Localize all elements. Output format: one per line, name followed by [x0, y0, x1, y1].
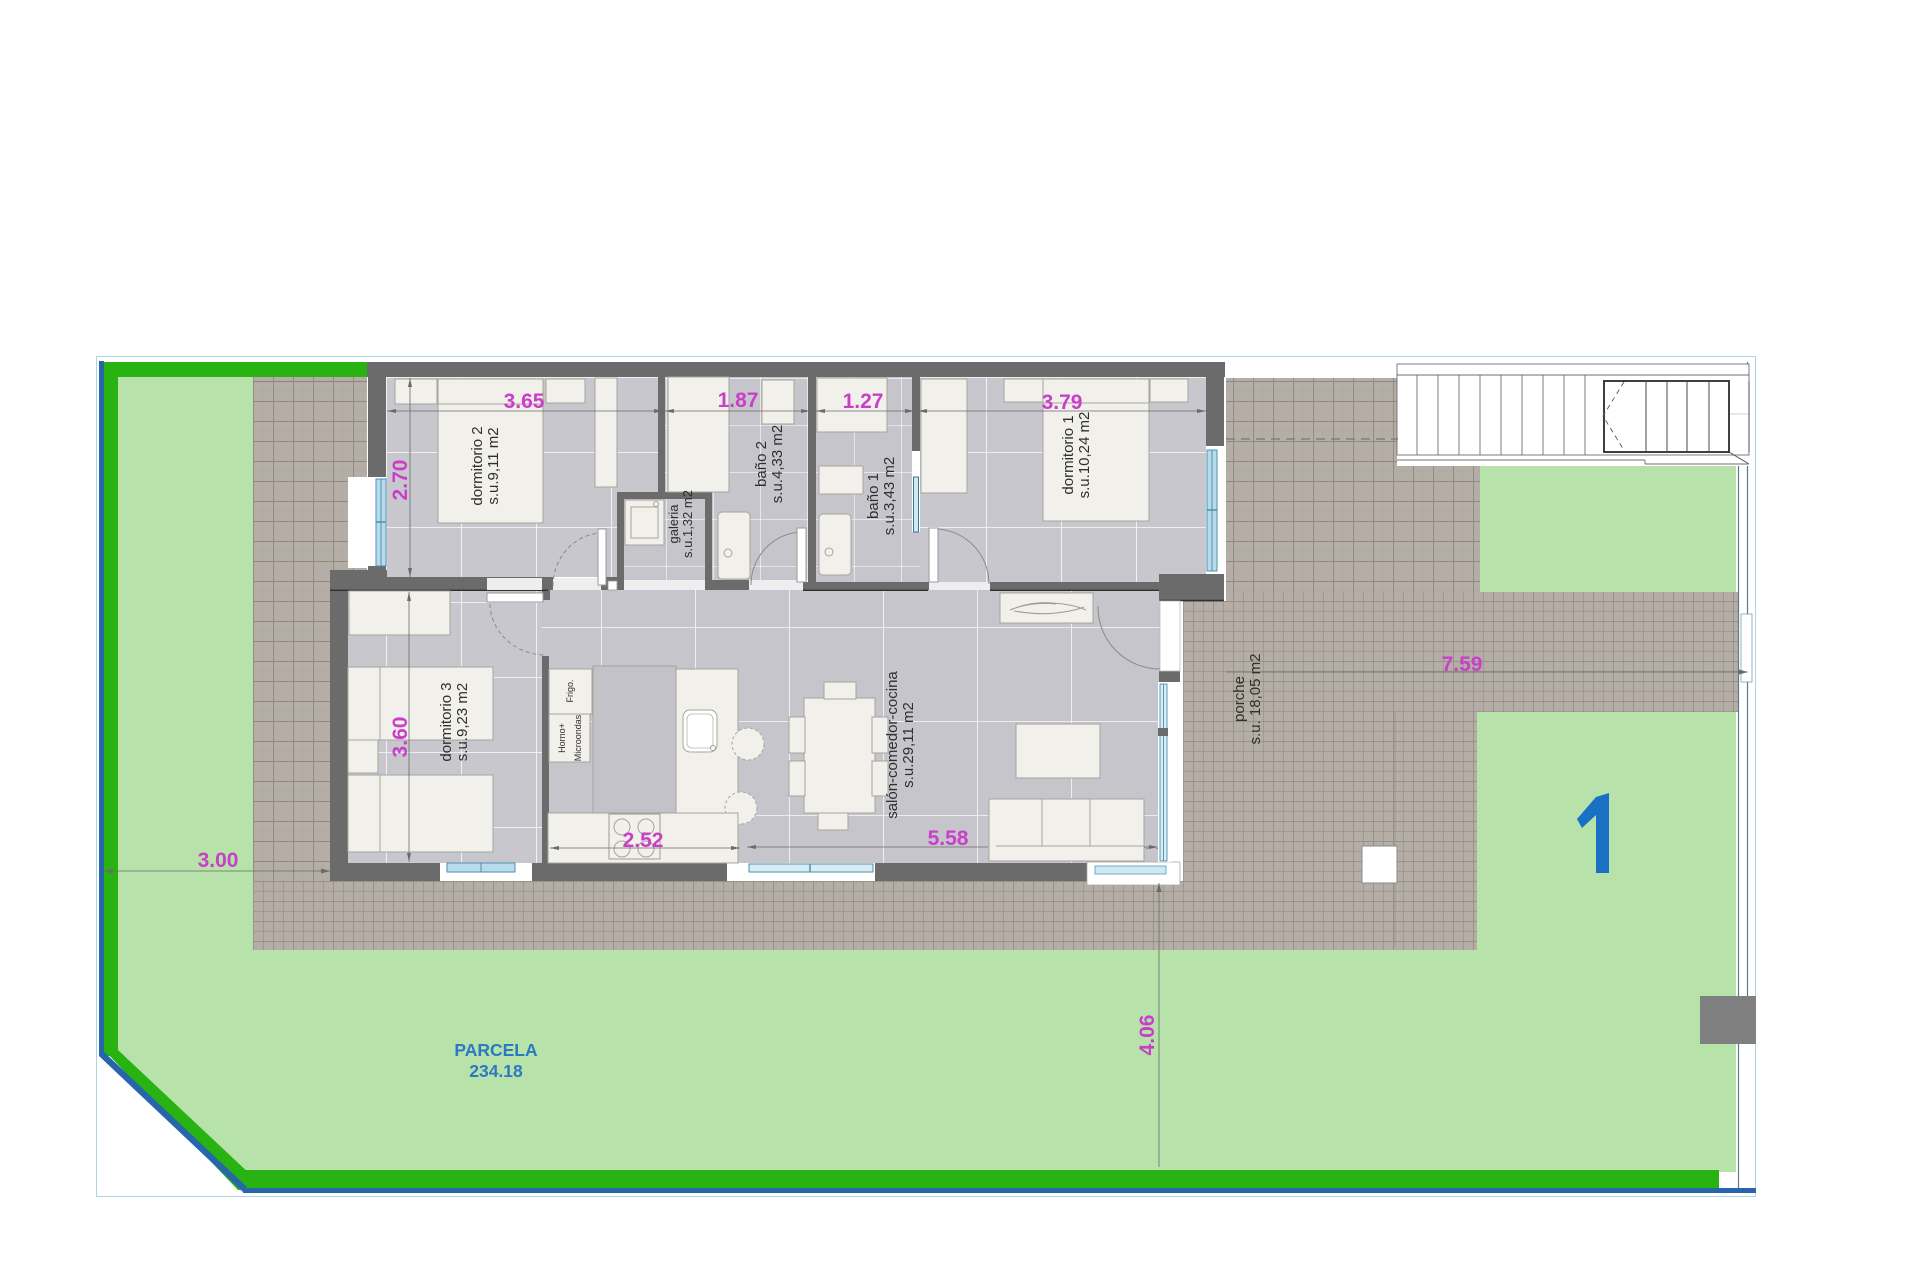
- svg-text:dormitorio 2: dormitorio 2: [469, 426, 486, 505]
- svg-text:Frigo.: Frigo.: [565, 679, 575, 702]
- svg-text:galeria: galeria: [666, 504, 681, 544]
- svg-text:234.18: 234.18: [469, 1061, 523, 1081]
- svg-text:PARCELA: PARCELA: [454, 1040, 538, 1060]
- svg-text:s.u.10,24 m2: s.u.10,24 m2: [1076, 412, 1093, 499]
- svg-text:s.u.9,23 m2: s.u.9,23 m2: [454, 683, 471, 761]
- svg-text:1.27: 1.27: [843, 390, 884, 413]
- svg-text:2.70: 2.70: [389, 460, 412, 501]
- svg-text:baño 2: baño 2: [753, 441, 770, 487]
- svg-text:4.06: 4.06: [1136, 1015, 1159, 1056]
- svg-text:7.59: 7.59: [1442, 653, 1483, 676]
- svg-text:s.u.29,11 m2: s.u.29,11 m2: [900, 702, 917, 788]
- svg-text:s.u.3,43 m2: s.u.3,43 m2: [881, 457, 898, 535]
- svg-text:dormitorio 1: dormitorio 1: [1060, 415, 1077, 494]
- svg-text:porche: porche: [1231, 676, 1248, 722]
- svg-text:3.65: 3.65: [504, 390, 545, 413]
- svg-text:1.87: 1.87: [718, 389, 759, 412]
- svg-text:2.52: 2.52: [623, 829, 664, 852]
- svg-text:3.00: 3.00: [198, 849, 239, 872]
- svg-text:salón-comedor-cocina: salón-comedor-cocina: [884, 671, 901, 819]
- svg-text:s.u.4,33 m2: s.u.4,33 m2: [769, 425, 786, 503]
- svg-text:5.58: 5.58: [928, 827, 969, 850]
- svg-text:s.u. 18,05 m2: s.u. 18,05 m2: [1247, 654, 1264, 745]
- svg-text:s.u.1,32 m2: s.u.1,32 m2: [680, 490, 695, 558]
- svg-text:3.60: 3.60: [389, 717, 412, 758]
- svg-text:Horno+: Horno+: [557, 723, 567, 753]
- svg-text:3.79: 3.79: [1042, 391, 1083, 414]
- svg-text:Microondas: Microondas: [573, 714, 583, 761]
- svg-text:s.u.9,11 m2: s.u.9,11 m2: [485, 427, 502, 504]
- svg-text:baño 1: baño 1: [865, 473, 882, 519]
- svg-text:dormitorio 3: dormitorio 3: [438, 682, 455, 761]
